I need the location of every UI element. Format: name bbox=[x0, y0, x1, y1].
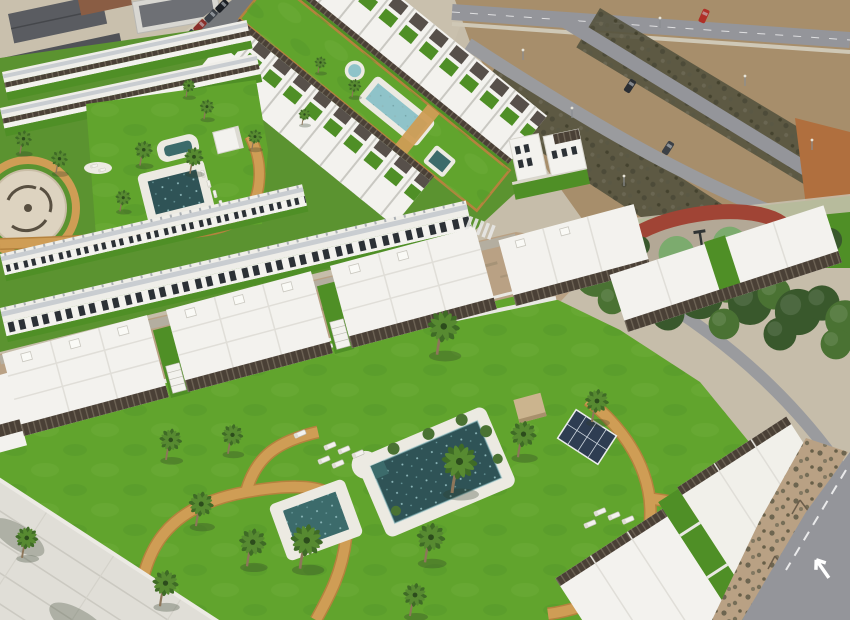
plaza-centre bbox=[24, 204, 32, 212]
circular-plaza bbox=[0, 170, 66, 246]
lounger-pad bbox=[84, 162, 112, 174]
aerial-render bbox=[0, 0, 850, 620]
scene-canvas bbox=[0, 0, 850, 620]
